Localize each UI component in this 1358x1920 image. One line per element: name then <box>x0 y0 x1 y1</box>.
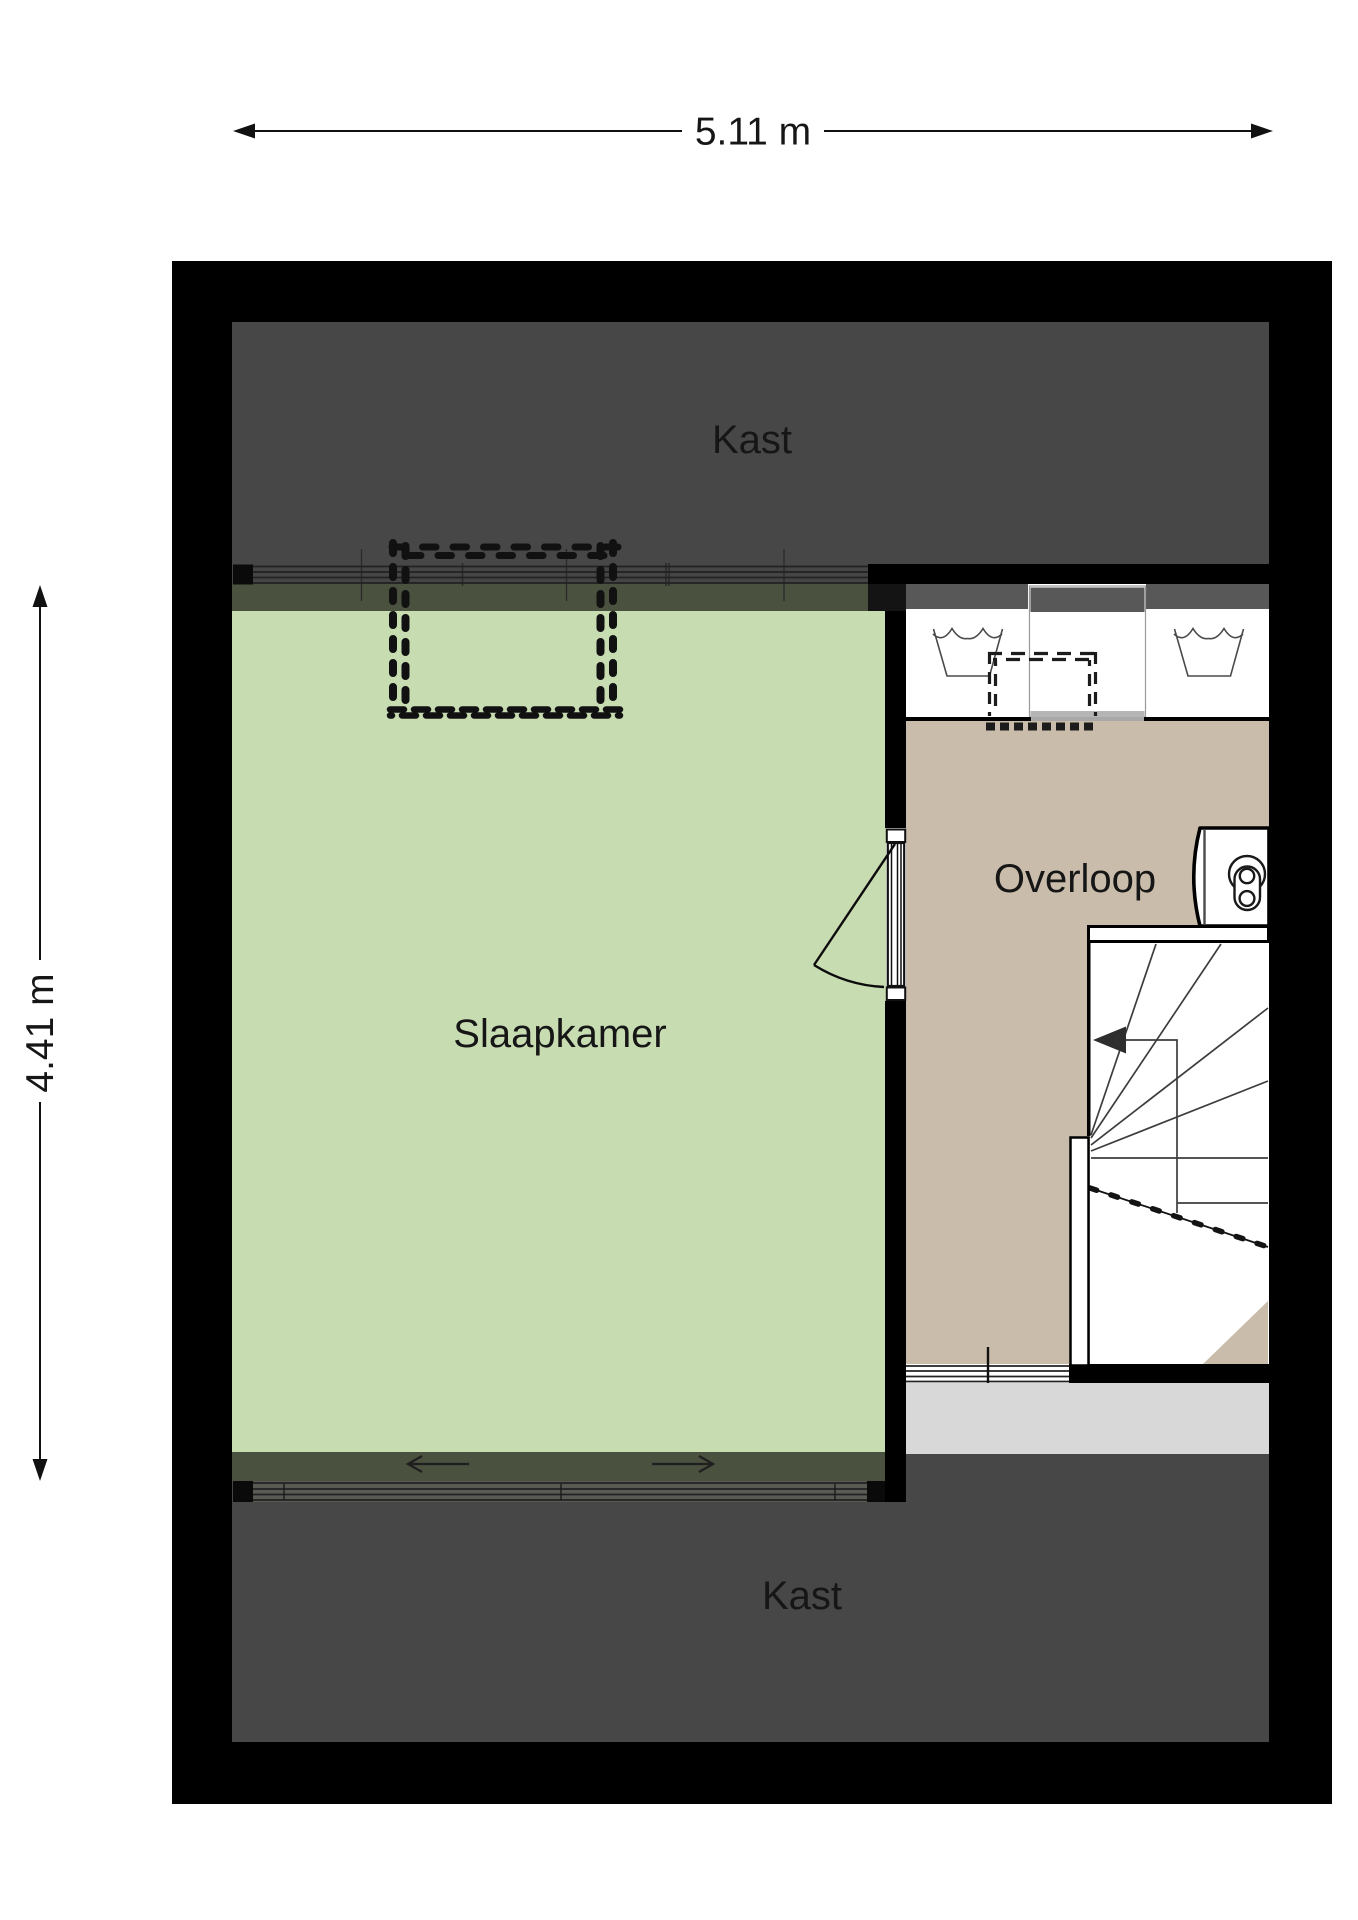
svg-text:5.11 m: 5.11 m <box>695 111 811 154</box>
svg-text:Slaapkamer: Slaapkamer <box>453 1012 666 1056</box>
svg-text:Kast: Kast <box>712 418 792 462</box>
svg-text:Kast: Kast <box>762 1574 842 1618</box>
svg-text:4.41 m: 4.41 m <box>19 973 62 1092</box>
svg-text:Overloop: Overloop <box>994 857 1156 901</box>
